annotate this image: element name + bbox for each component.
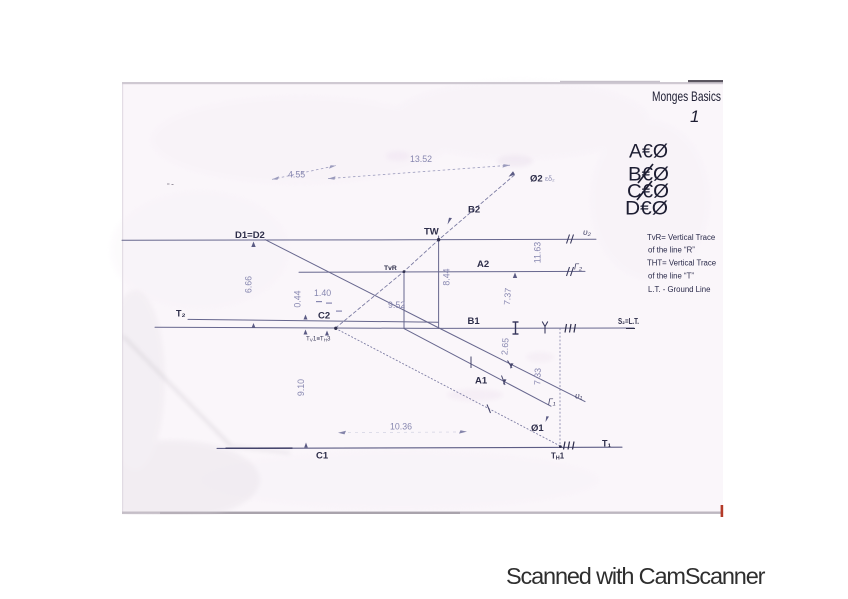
svg-text:11.63: 11.63	[533, 242, 543, 263]
svg-text:A2: A2	[477, 259, 489, 270]
svg-text:2.65: 2.65	[499, 338, 510, 356]
svg-text:8.44: 8.44	[442, 268, 452, 285]
svg-text:υ₂: υ₂	[583, 227, 592, 237]
svg-text:TvR= Vertical Trace: TvR= Vertical Trace	[647, 233, 715, 242]
svg-text:10.36: 10.36	[390, 422, 412, 432]
svg-text:A1: A1	[475, 376, 488, 387]
svg-text:TV1≡TH3: TV1≡TH3	[306, 336, 331, 343]
svg-text:εδ₂: εδ₂	[545, 176, 555, 183]
svg-text:C2: C2	[318, 311, 330, 322]
svg-text:L.T. - Ground Line: L.T. - Ground Line	[648, 285, 710, 294]
svg-text:B2: B2	[468, 205, 480, 216]
svg-text:4.55: 4.55	[288, 170, 305, 180]
svg-text:9.52: 9.52	[388, 300, 405, 310]
svg-text:Γ₁: Γ₁	[548, 397, 556, 407]
svg-text:13.52: 13.52	[410, 154, 432, 164]
svg-text:1: 1	[690, 107, 699, 126]
svg-text:Γ₂: Γ₂	[574, 262, 583, 272]
svg-text:D€Ø: D€Ø	[625, 199, 668, 220]
svg-text:of the line “T”: of the line “T”	[648, 272, 694, 281]
svg-text:T₁: T₁	[602, 439, 611, 449]
svg-text:9.10: 9.10	[296, 379, 306, 396]
svg-text:THT= Vertical Trace: THT= Vertical Trace	[647, 259, 716, 268]
svg-text:1.40: 1.40	[314, 288, 331, 298]
svg-text:7.37: 7.37	[502, 288, 513, 306]
svg-text:TvR: TvR	[384, 265, 397, 272]
svg-text:B1: B1	[468, 316, 481, 327]
svg-text:Ø2: Ø2	[530, 174, 543, 185]
svg-text:6.66: 6.66	[244, 276, 254, 293]
svg-text:Monges Basics: Monges Basics	[652, 88, 721, 104]
svg-text:TW: TW	[424, 227, 439, 238]
svg-text:of the line “R”: of the line “R”	[648, 246, 695, 255]
svg-text:7.33: 7.33	[532, 368, 543, 386]
svg-text:S₂=L.T.: S₂=L.T.	[618, 317, 639, 326]
svg-text:D1=D2: D1=D2	[235, 230, 265, 241]
svg-text:0.44: 0.44	[293, 290, 303, 307]
svg-text:υ₁: υ₁	[575, 391, 583, 401]
svg-text:C1: C1	[316, 451, 329, 462]
svg-text:Ø1: Ø1	[531, 423, 544, 434]
svg-text:T₂: T₂	[176, 309, 186, 319]
svg-text:A€Ø: A€Ø	[629, 142, 668, 163]
